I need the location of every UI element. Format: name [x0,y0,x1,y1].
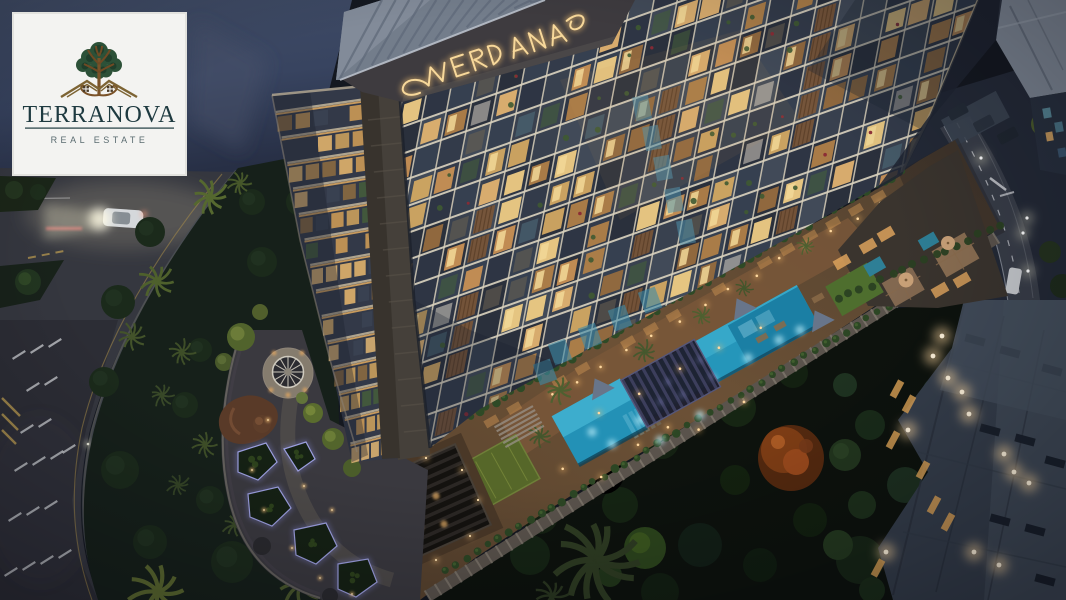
svg-text:REAL ESTATE: REAL ESTATE [51,135,149,145]
svg-text:TERRANOVA: TERRANOVA [23,102,177,128]
